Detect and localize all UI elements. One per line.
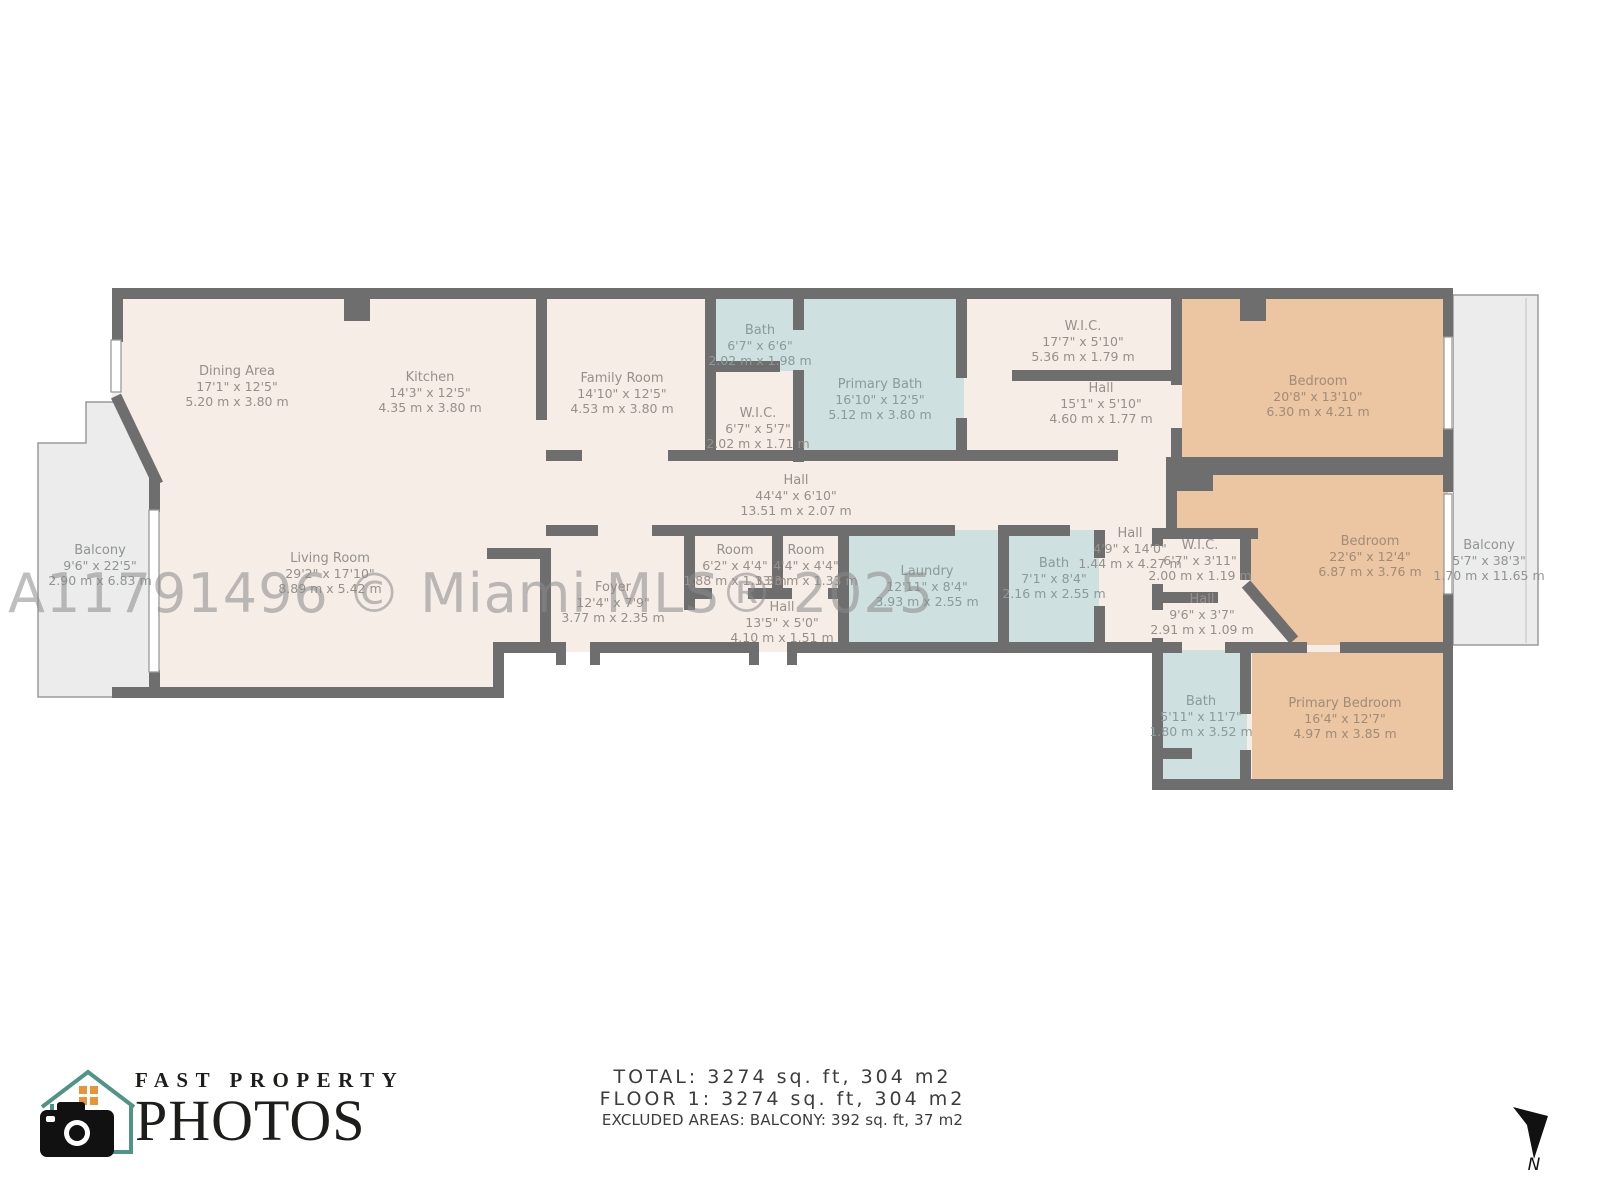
bath-bottom-area (1162, 650, 1247, 785)
north-label: N (1514, 1155, 1554, 1175)
logo-bottom-text: PHOTOS (135, 1093, 404, 1149)
primary-bath-area (802, 293, 964, 460)
floorplan-page: Dining Area17'1" x 12'5"5.20 m x 3.80 mK… (0, 0, 1600, 1200)
mls-watermark: A11791496 © Miami MLS® 2025 (8, 562, 934, 625)
bedroom-top-area (1182, 293, 1448, 463)
fast-property-photos-logo: FAST PROPERTY PHOTOS (35, 1064, 335, 1159)
balcony-right-area (1453, 295, 1538, 645)
primary-bedroom-area (1252, 652, 1448, 784)
bath-top-area (716, 293, 802, 371)
bath-mid-area (1004, 530, 1099, 642)
